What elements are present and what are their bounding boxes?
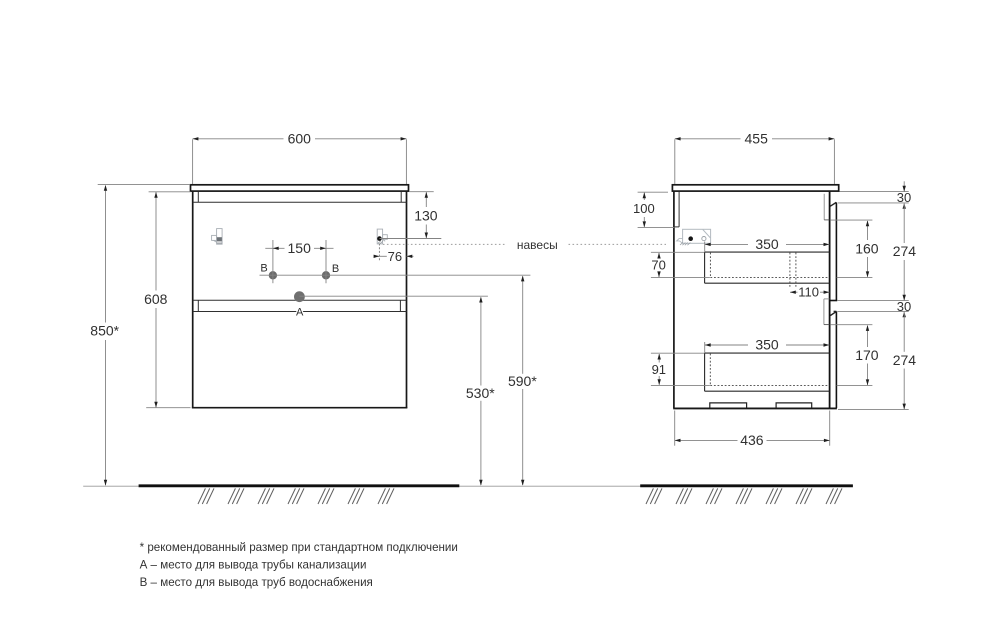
svg-text:350: 350 bbox=[755, 236, 779, 252]
svg-text:150: 150 bbox=[288, 240, 312, 256]
svg-text:170: 170 bbox=[855, 347, 879, 363]
svg-text:130: 130 bbox=[414, 207, 438, 223]
svg-text:91: 91 bbox=[652, 362, 666, 377]
svg-text:70: 70 bbox=[651, 257, 665, 272]
svg-text:436: 436 bbox=[740, 432, 764, 448]
svg-text:608: 608 bbox=[144, 291, 168, 307]
svg-text:850*: 850* bbox=[90, 323, 119, 339]
svg-text:590*: 590* bbox=[508, 373, 537, 389]
svg-text:455: 455 bbox=[745, 131, 769, 147]
svg-text:* рекомендованный размер при с: * рекомендованный размер при стандартном… bbox=[140, 541, 458, 554]
svg-text:160: 160 bbox=[855, 240, 879, 256]
svg-text:76: 76 bbox=[388, 249, 402, 264]
svg-text:А: А bbox=[296, 307, 304, 319]
svg-text:100: 100 bbox=[633, 201, 655, 216]
svg-text:В – место для вывода труб водо: В – место для вывода труб водоснабжения bbox=[140, 576, 373, 589]
svg-text:350: 350 bbox=[755, 337, 779, 353]
svg-text:навесы: навесы bbox=[517, 238, 558, 252]
svg-text:30: 30 bbox=[897, 190, 911, 205]
svg-text:274: 274 bbox=[893, 352, 917, 368]
svg-text:А – место для вывода трубы кан: А – место для вывода трубы канализации bbox=[140, 559, 367, 572]
svg-text:110: 110 bbox=[798, 284, 819, 299]
svg-text:600: 600 bbox=[288, 131, 312, 147]
svg-text:274: 274 bbox=[893, 243, 917, 259]
svg-text:530*: 530* bbox=[466, 385, 495, 401]
svg-text:В: В bbox=[332, 263, 339, 275]
svg-text:В: В bbox=[260, 263, 267, 275]
